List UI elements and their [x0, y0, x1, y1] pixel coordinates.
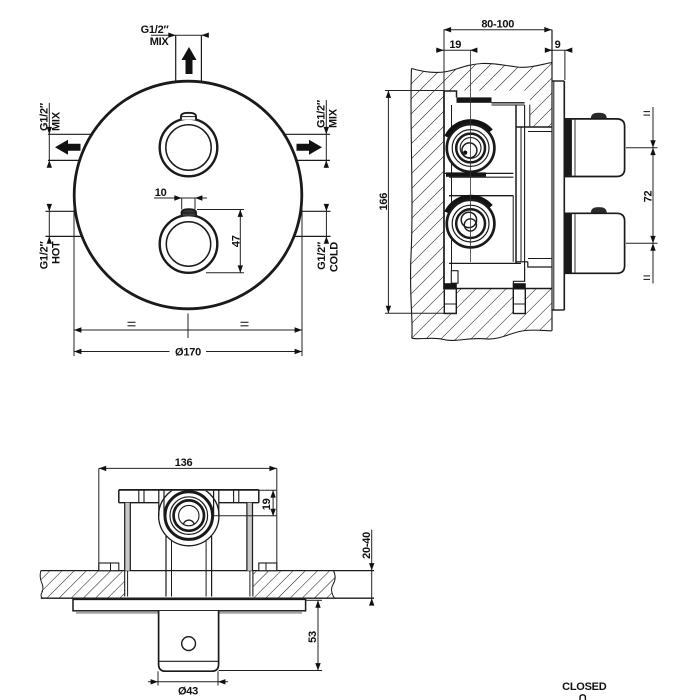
svg-text:CLOSED: CLOSED	[562, 681, 607, 693]
svg-text:53: 53	[307, 631, 319, 643]
svg-text:Ø43: Ø43	[178, 686, 198, 698]
svg-text:G1/2″: G1/2″	[316, 241, 328, 270]
svg-text:47: 47	[231, 235, 243, 247]
svg-text:G1/2″: G1/2″	[39, 241, 51, 270]
svg-text:19: 19	[261, 498, 273, 510]
svg-text:G1/2″: G1/2″	[39, 102, 51, 131]
svg-text:G1/2″: G1/2″	[141, 24, 170, 36]
svg-text:COLD: COLD	[329, 242, 341, 272]
svg-text:136: 136	[175, 457, 193, 469]
svg-text:80-100: 80-100	[481, 19, 514, 31]
svg-text:HOT: HOT	[51, 241, 63, 264]
svg-text:G1/2″: G1/2″	[316, 99, 328, 128]
svg-text:MIX: MIX	[328, 108, 340, 128]
svg-text:20-40: 20-40	[361, 532, 373, 559]
svg-text:19: 19	[449, 39, 461, 51]
svg-text:Ø170: Ø170	[175, 347, 201, 359]
svg-text:10: 10	[155, 187, 167, 199]
svg-text:MIX: MIX	[51, 111, 63, 131]
svg-text:72: 72	[642, 191, 654, 203]
svg-text:166: 166	[378, 193, 390, 211]
svg-text:MIX: MIX	[150, 36, 170, 48]
svg-text:9: 9	[555, 39, 561, 51]
